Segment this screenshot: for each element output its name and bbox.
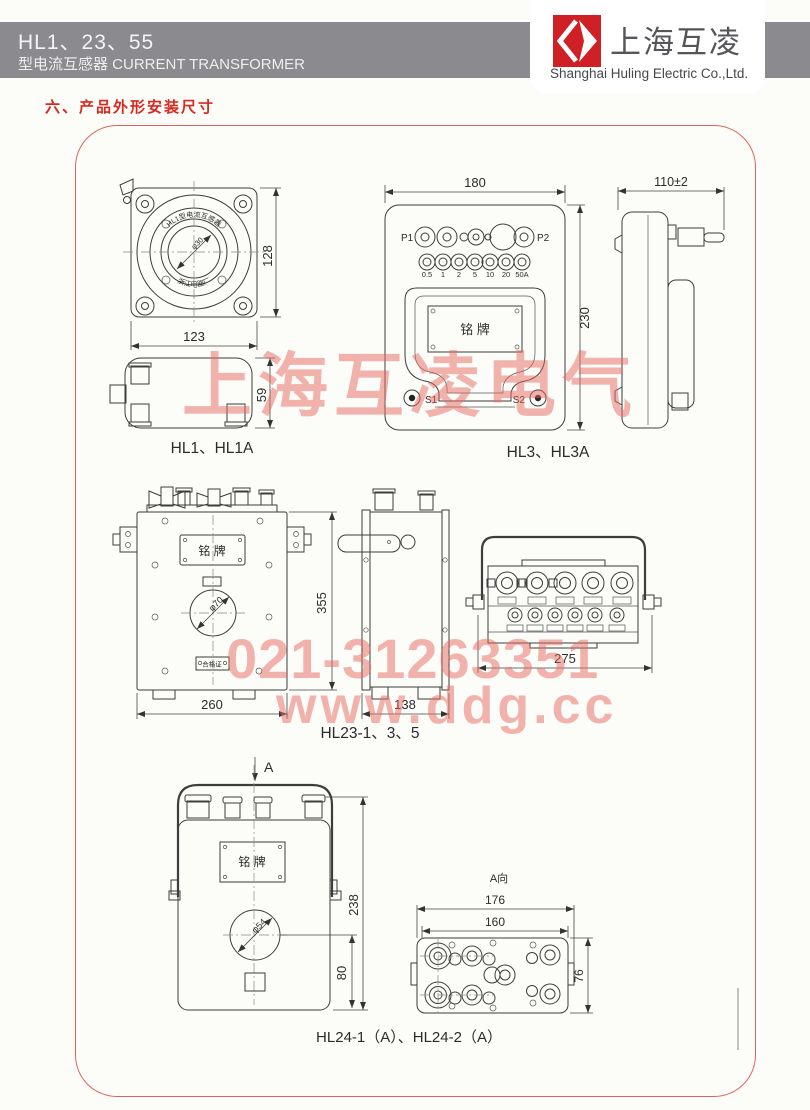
watermark-web: www.ddg.cc: [276, 676, 617, 736]
hl3-tap-row: 0.5 1 2 5 10 20 50A: [419, 254, 530, 279]
hl24-dim-height: 238: [346, 894, 361, 916]
hl3-tap-3: 5: [473, 270, 477, 279]
logo-panel: 上海互凌 Shanghai Huling Electric Co.,Ltd.: [530, 0, 765, 93]
watermark-brand: 上海互凌电气: [182, 330, 638, 431]
hl24-dim-h: 76: [572, 969, 586, 983]
scan-artifact-line: [737, 988, 739, 1050]
hl24-dim-w2: 160: [485, 915, 505, 929]
brand-name: 上海互凌: [610, 17, 742, 62]
header-model: HL1、23、55: [18, 26, 154, 56]
hl23-dim-width: 260: [201, 697, 223, 712]
hl24-view-label: A向: [490, 871, 508, 885]
hl23-dim-height: 355: [314, 592, 329, 614]
hl3-tap-1: 1: [441, 270, 445, 279]
fig-hl24-top-view: A向 176 160 76: [411, 871, 593, 1013]
hl3-tap-0: 0.5: [422, 270, 432, 279]
hl3-dim-width: 180: [464, 175, 486, 190]
section-title: 六、产品外形安装尺寸: [45, 96, 215, 117]
hl1-dim-height: 128: [260, 245, 275, 267]
header-subtitle: 型电流互感器 CURRENT TRANSFORMER: [18, 53, 305, 74]
hl3-tap-5: 20: [502, 270, 510, 279]
hl1-figure-label: HL1、HL1A: [171, 440, 254, 457]
hl3-figure-label: HL3、HL3A: [507, 444, 590, 461]
brand-logo-icon: [553, 15, 601, 67]
hl24-nameplate: 铭 牌: [238, 854, 265, 869]
hl3-tap-4: 10: [486, 270, 494, 279]
hl24-figure-label: HL24-1（A）、HL24-2（A）: [316, 1029, 502, 1046]
hl3-tap-2: 2: [457, 270, 461, 279]
hl3-dim-depth: 110±2: [654, 175, 688, 189]
hl24-dim-lower: 80: [334, 966, 349, 980]
hl1-center-dim: φ30: [189, 235, 205, 251]
hl24-hole-dim: φ54: [250, 917, 268, 935]
hl3-terminal-p1: P1: [401, 233, 414, 244]
hl24-dim-w1: 176: [485, 893, 505, 907]
diamond-logo-glyph: [553, 15, 601, 67]
company-name: Shanghai Huling Electric Co.,Ltd.: [550, 66, 748, 81]
fig-hl1-front: HL1型电流互感器 浙江电器厂 φ30 123 128: [120, 179, 281, 350]
hl24-view-arrow: A: [264, 759, 274, 775]
hl3-dim-height: 230: [577, 307, 592, 329]
technical-drawings: HL1型电流互感器 浙江电器厂 φ30 123 128 59 HL1、HL1A …: [75, 125, 755, 1095]
hl23-hole-dim: φ70: [207, 595, 225, 613]
hl23-cert-plate: 合格证: [202, 660, 222, 669]
hl23-top-terminal-row1: [487, 572, 633, 604]
hl3-terminal-p2: P2: [537, 233, 550, 244]
hl23-nameplate: 铭 牌: [198, 543, 225, 558]
hl3-tap-6: 50A: [515, 270, 528, 279]
